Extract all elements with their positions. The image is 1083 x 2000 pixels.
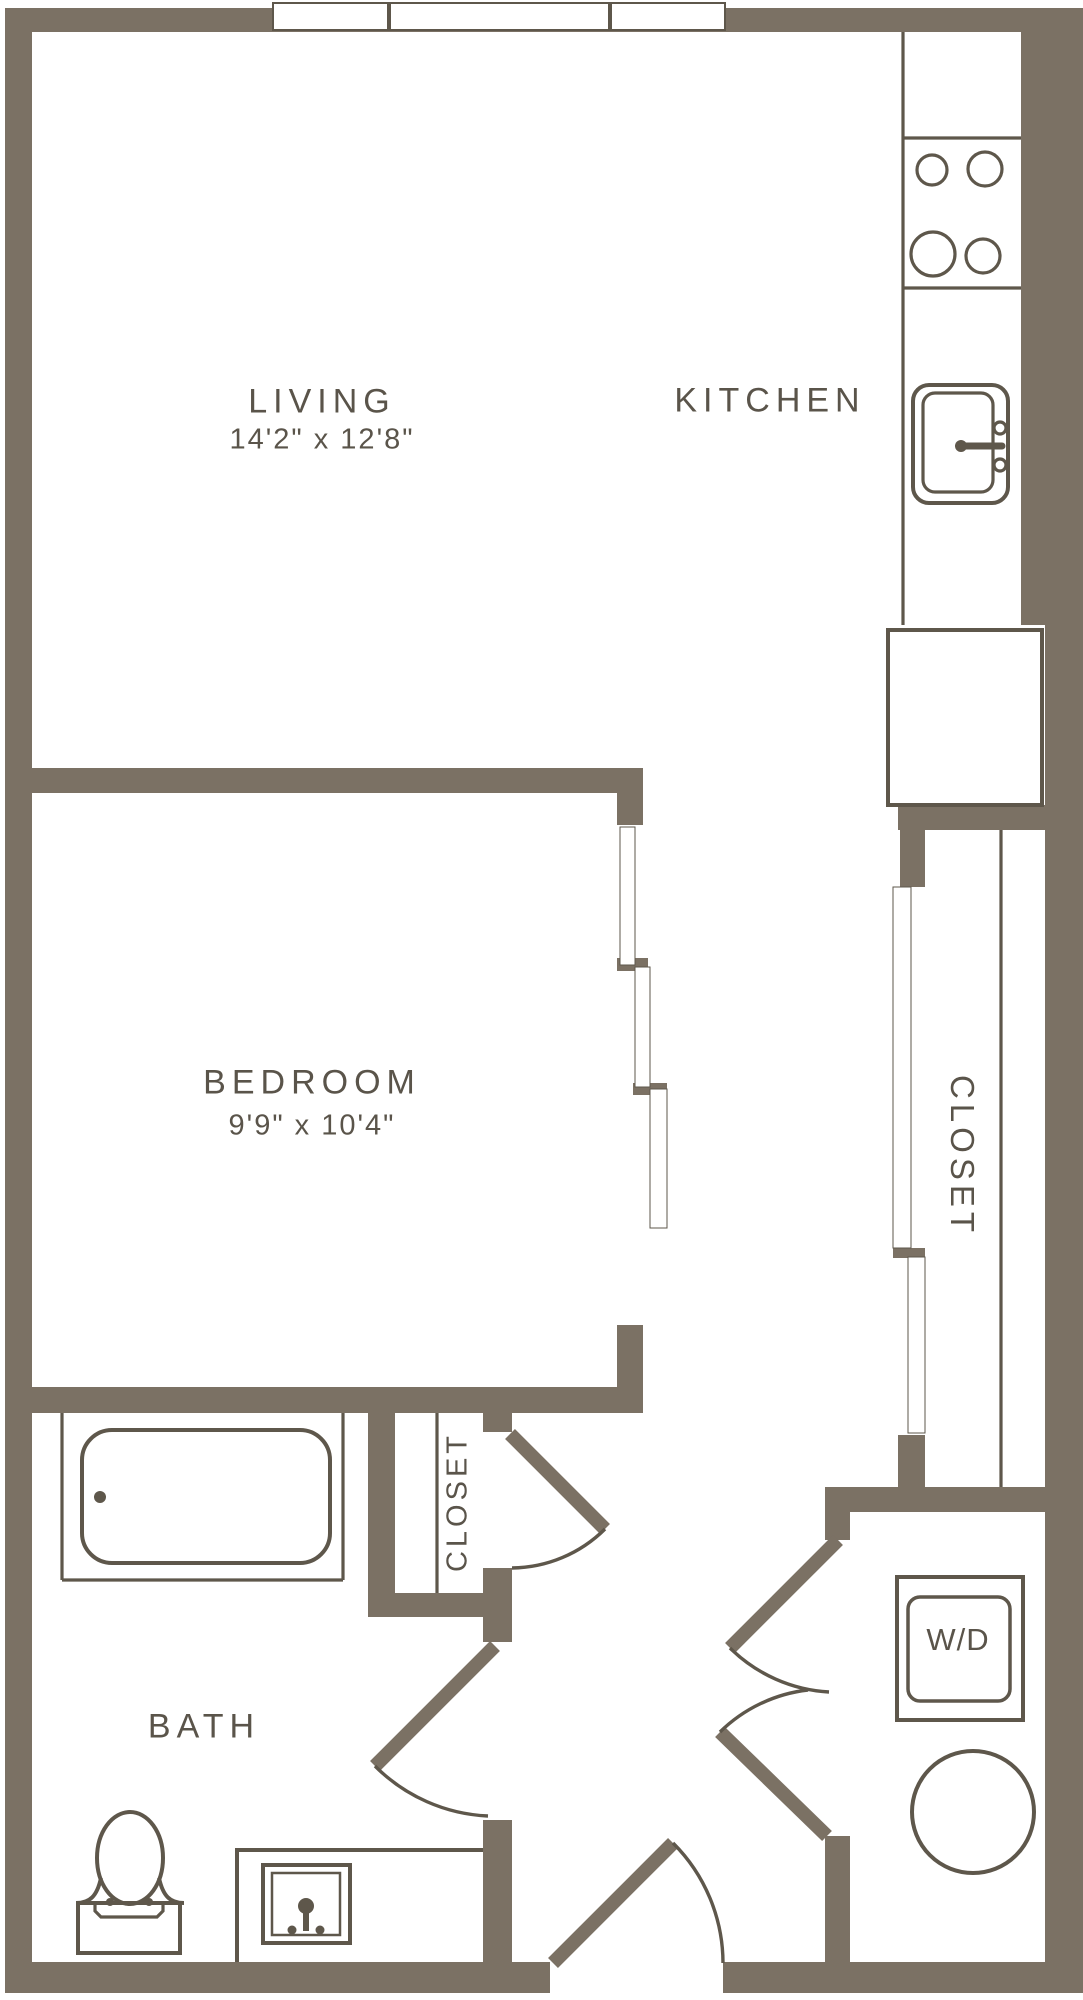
living-room-label: LIVING [248, 383, 395, 422]
toilet-icon [76, 1812, 184, 1953]
water-heater-icon [912, 1751, 1034, 1873]
kitchen-label: KITCHEN [674, 382, 865, 421]
refrigerator-icon [888, 630, 1042, 805]
kitchen-counter [903, 32, 1021, 625]
vanity-sink-icon [237, 1850, 483, 1962]
bath-door [375, 1646, 495, 1816]
living-room-dimensions: 14'2" x 12'8" [229, 424, 414, 457]
bedroom-sliding-door [620, 827, 667, 1228]
entry-door [553, 1843, 723, 1963]
laundry-door-top [730, 1540, 838, 1692]
bedroom-dimensions: 9'9" x 10'4" [229, 1110, 396, 1143]
laundry-door-bottom [720, 1690, 827, 1836]
kitchen-sink-icon [913, 385, 1008, 503]
bedroom-label: BEDROOM [203, 1064, 421, 1103]
floor-plan: LIVING 14'2" x 12'8" KITCHEN BEDROOM 9'9… [0, 0, 1083, 2000]
washer-dryer-label: W/D [926, 1622, 989, 1658]
floorplan-fixtures [0, 0, 1083, 2000]
closet-sliding-door [893, 887, 925, 1433]
bath-label: BATH [148, 1708, 260, 1747]
bathtub-icon [62, 1413, 343, 1580]
hall-closet-label: CLOSET [442, 1432, 475, 1572]
stove-icon [911, 152, 1002, 276]
right-closet-label: CLOSET [943, 1075, 981, 1237]
hall-closet-door [510, 1434, 605, 1568]
